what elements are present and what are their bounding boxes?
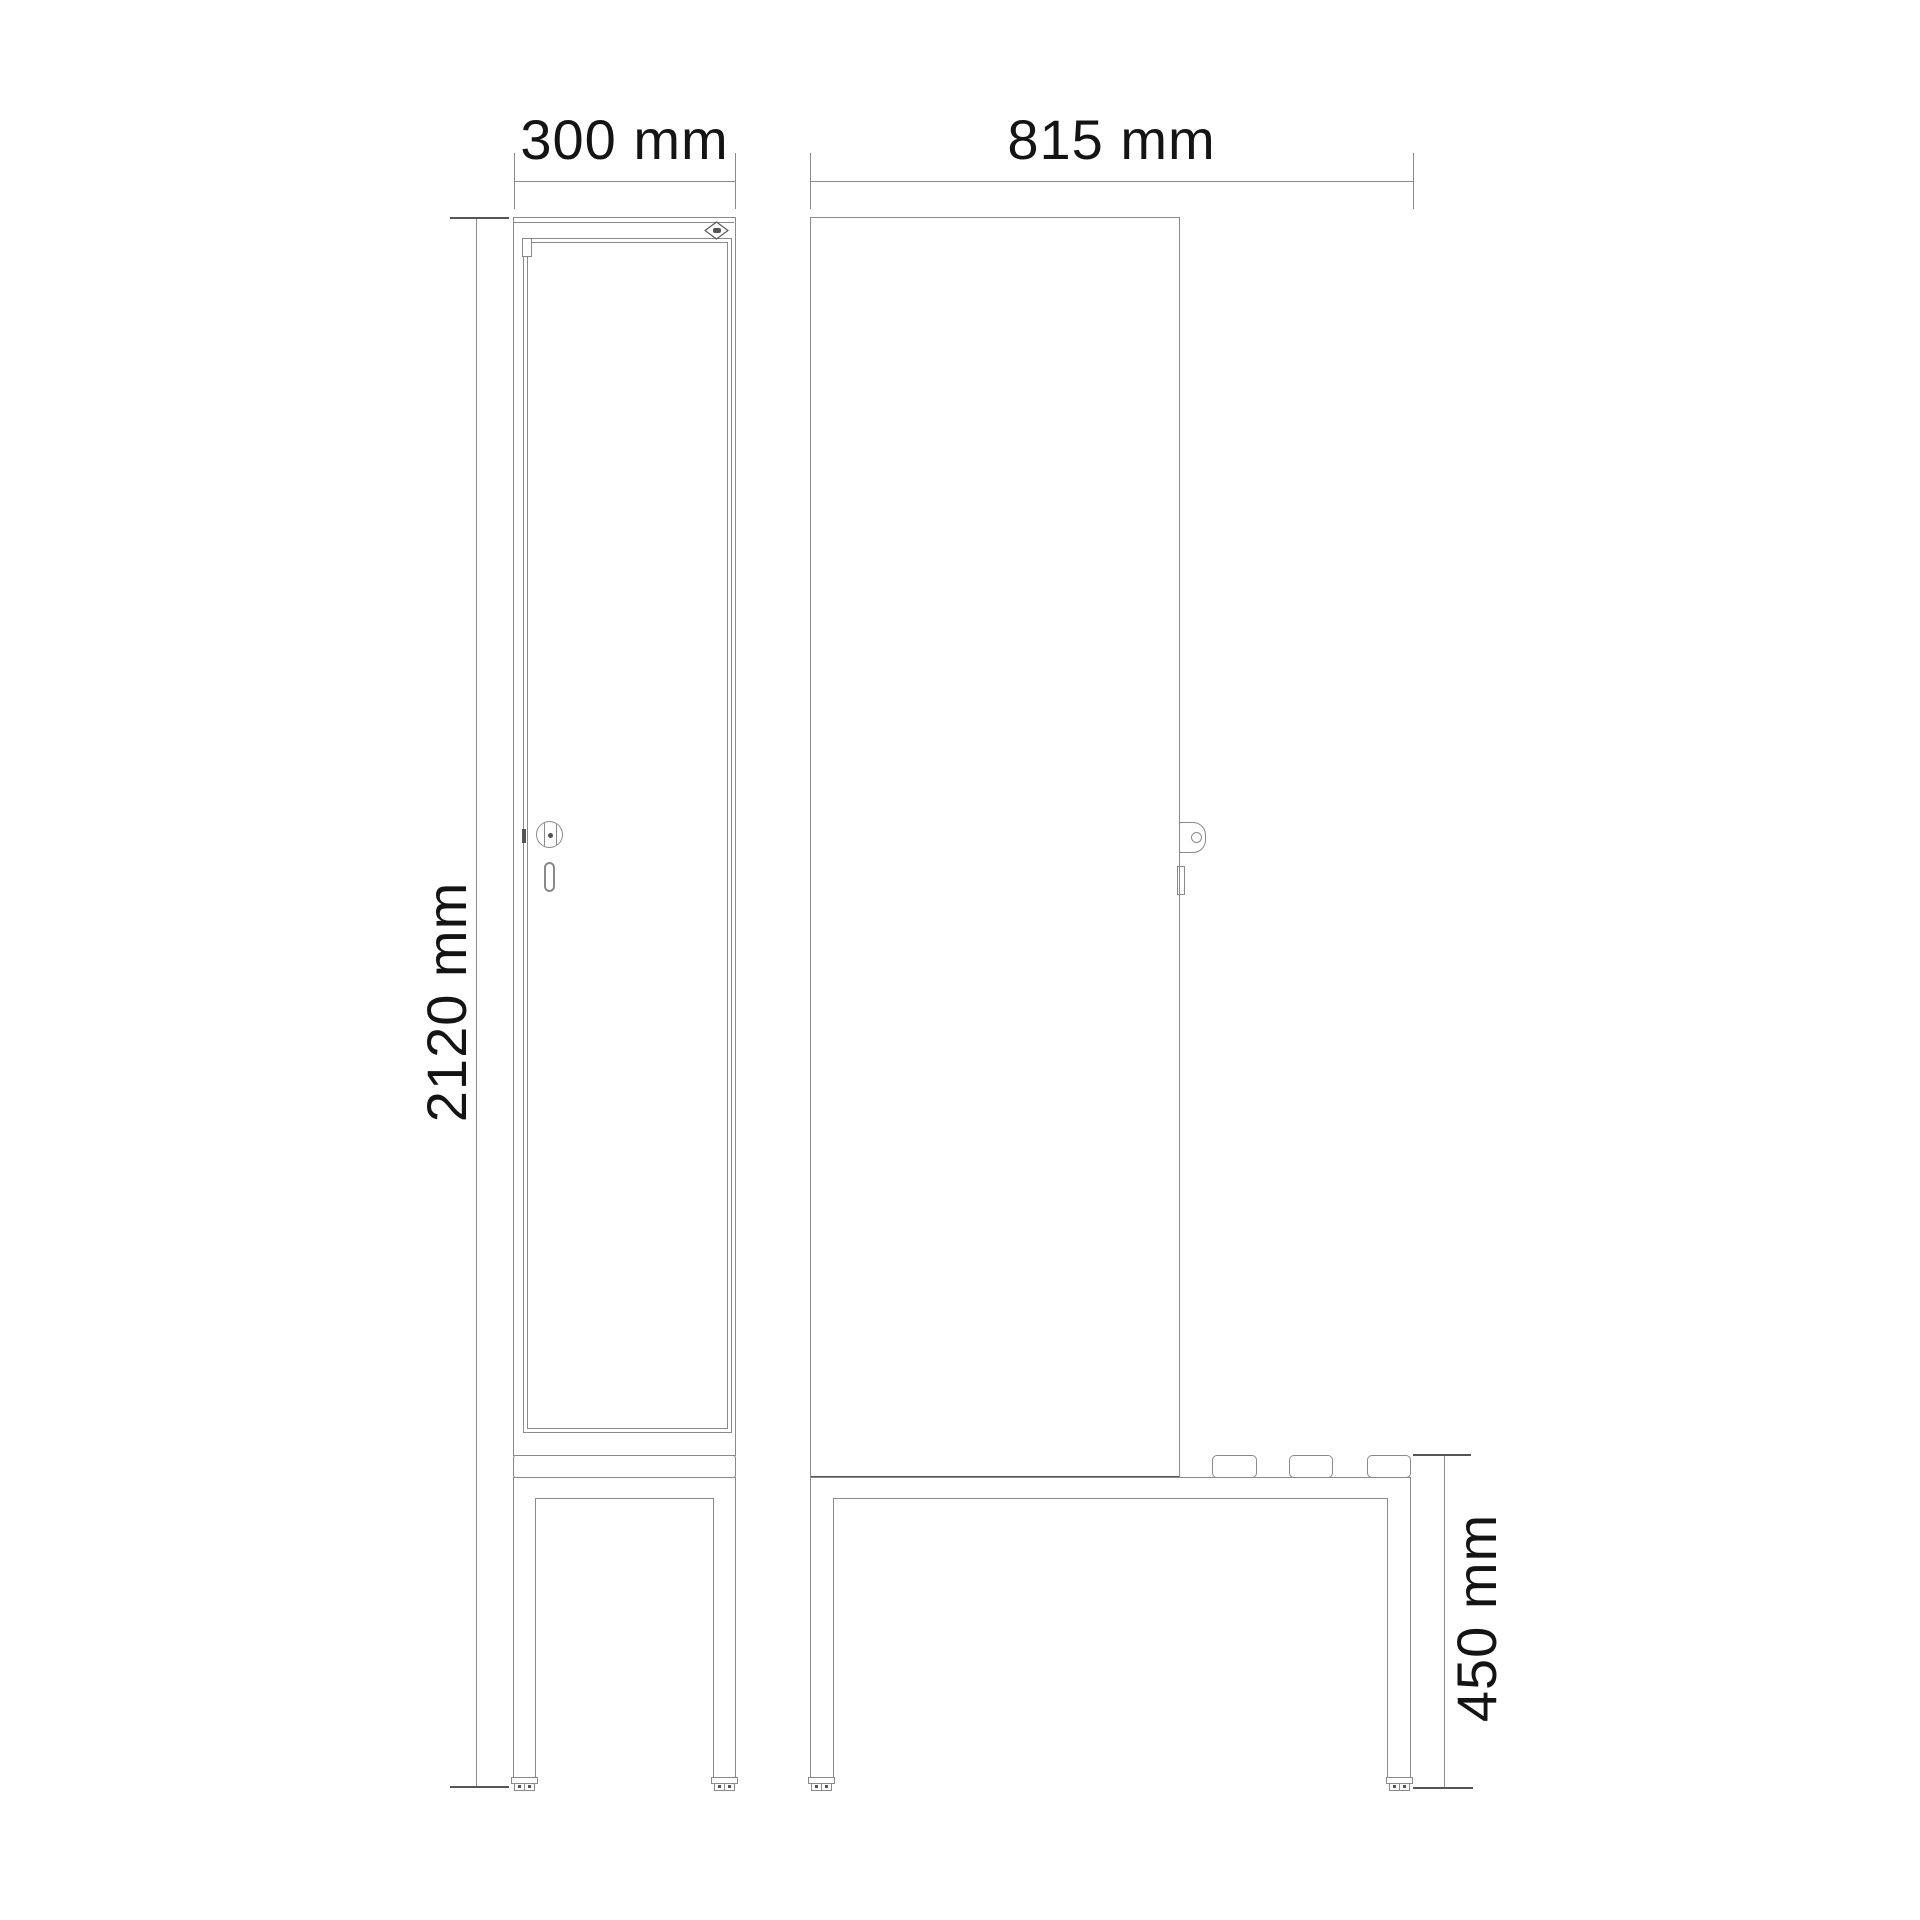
dimension-tick <box>450 1786 509 1788</box>
handle-slot-icon <box>544 862 555 892</box>
dimension-label-front-width: 300 mm <box>514 110 735 170</box>
door-hinge-notch <box>522 238 532 257</box>
lock-center-dot <box>548 833 553 838</box>
bench-slat <box>1289 1455 1333 1478</box>
dimension-tick <box>1413 1454 1471 1456</box>
bench-slat <box>1212 1455 1257 1478</box>
stand-opening-side <box>833 1498 1388 1777</box>
lock-tab-side-icon <box>1179 822 1206 853</box>
stand-opening-front <box>535 1498 714 1777</box>
adjustable-foot <box>811 1783 832 1791</box>
brand-logo-mark <box>713 228 721 233</box>
dimension-label-total-depth: 815 mm <box>810 110 1413 170</box>
bench-slat-front <box>513 1455 736 1478</box>
cylinder-lock-icon <box>536 821 563 848</box>
dimension-line <box>514 181 736 182</box>
dimension-label-bench-height: 450 mm <box>1447 1498 1507 1738</box>
adjustable-foot <box>514 1783 535 1791</box>
bench-slat <box>1367 1455 1411 1478</box>
dimension-line <box>810 181 1414 182</box>
dimension-tick <box>450 217 509 219</box>
dimension-tick <box>1413 1787 1473 1789</box>
cabinet-top-lip-line <box>514 222 734 223</box>
dimension-label-total-height: 2120 mm <box>417 852 477 1152</box>
side-panel-outline <box>810 217 1180 1478</box>
hinge-pin-icon <box>522 829 526 843</box>
handle-slot-side-icon <box>1177 866 1185 895</box>
technical-drawing-canvas: 300 mm 815 mm 2120 mm 450 mm <box>0 0 1920 1920</box>
adjustable-foot <box>1389 1783 1410 1791</box>
lock-tab-circle <box>1191 832 1202 843</box>
adjustable-foot <box>714 1783 735 1791</box>
